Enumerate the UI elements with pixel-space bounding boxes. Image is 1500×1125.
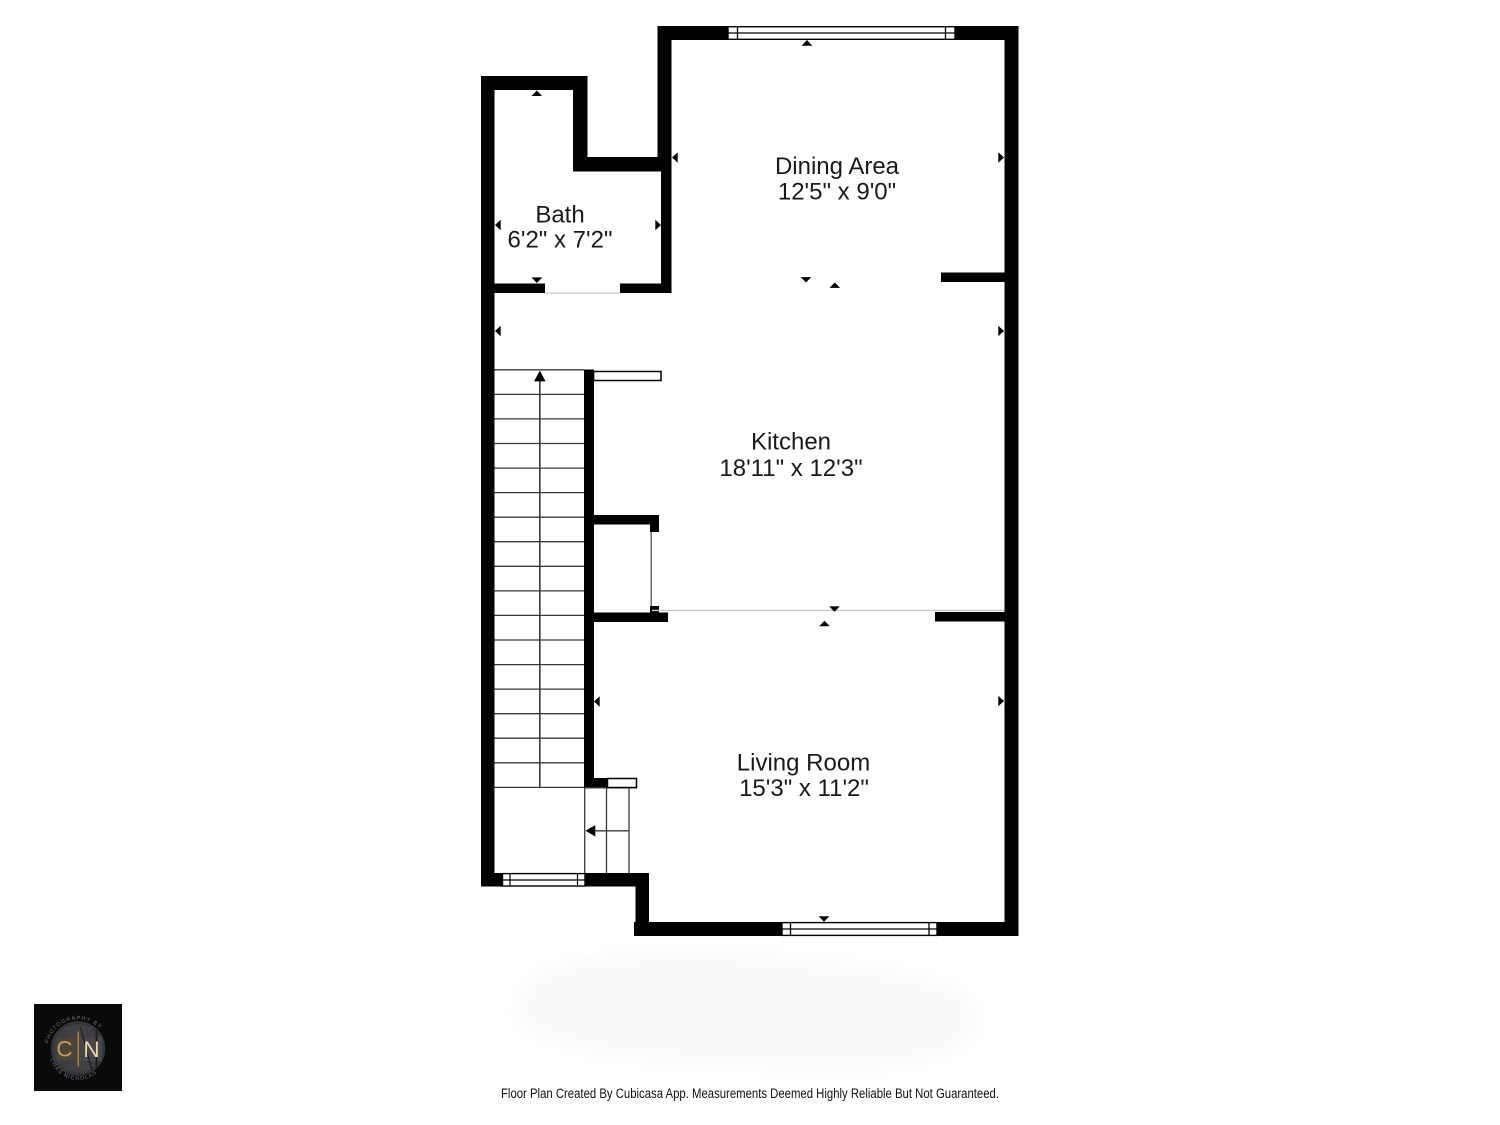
svg-text:N: N bbox=[83, 1037, 99, 1062]
svg-text:18'11" x 12'3": 18'11" x 12'3" bbox=[719, 455, 862, 482]
svg-text:Kitchen: Kitchen bbox=[751, 429, 831, 456]
svg-text:15'3" x 11'2": 15'3" x 11'2" bbox=[739, 775, 869, 802]
svg-text:C: C bbox=[56, 1037, 72, 1062]
svg-text:Living Room: Living Room bbox=[737, 750, 870, 777]
svg-text:Floor Plan Created By Cubicasa: Floor Plan Created By Cubicasa App. Meas… bbox=[501, 1086, 999, 1101]
svg-text:Dining Area: Dining Area bbox=[775, 153, 900, 180]
svg-text:12'5" x 9'0": 12'5" x 9'0" bbox=[778, 179, 896, 206]
svg-text:Bath: Bath bbox=[535, 202, 584, 229]
svg-text:6'2" x 7'2": 6'2" x 7'2" bbox=[508, 227, 613, 254]
